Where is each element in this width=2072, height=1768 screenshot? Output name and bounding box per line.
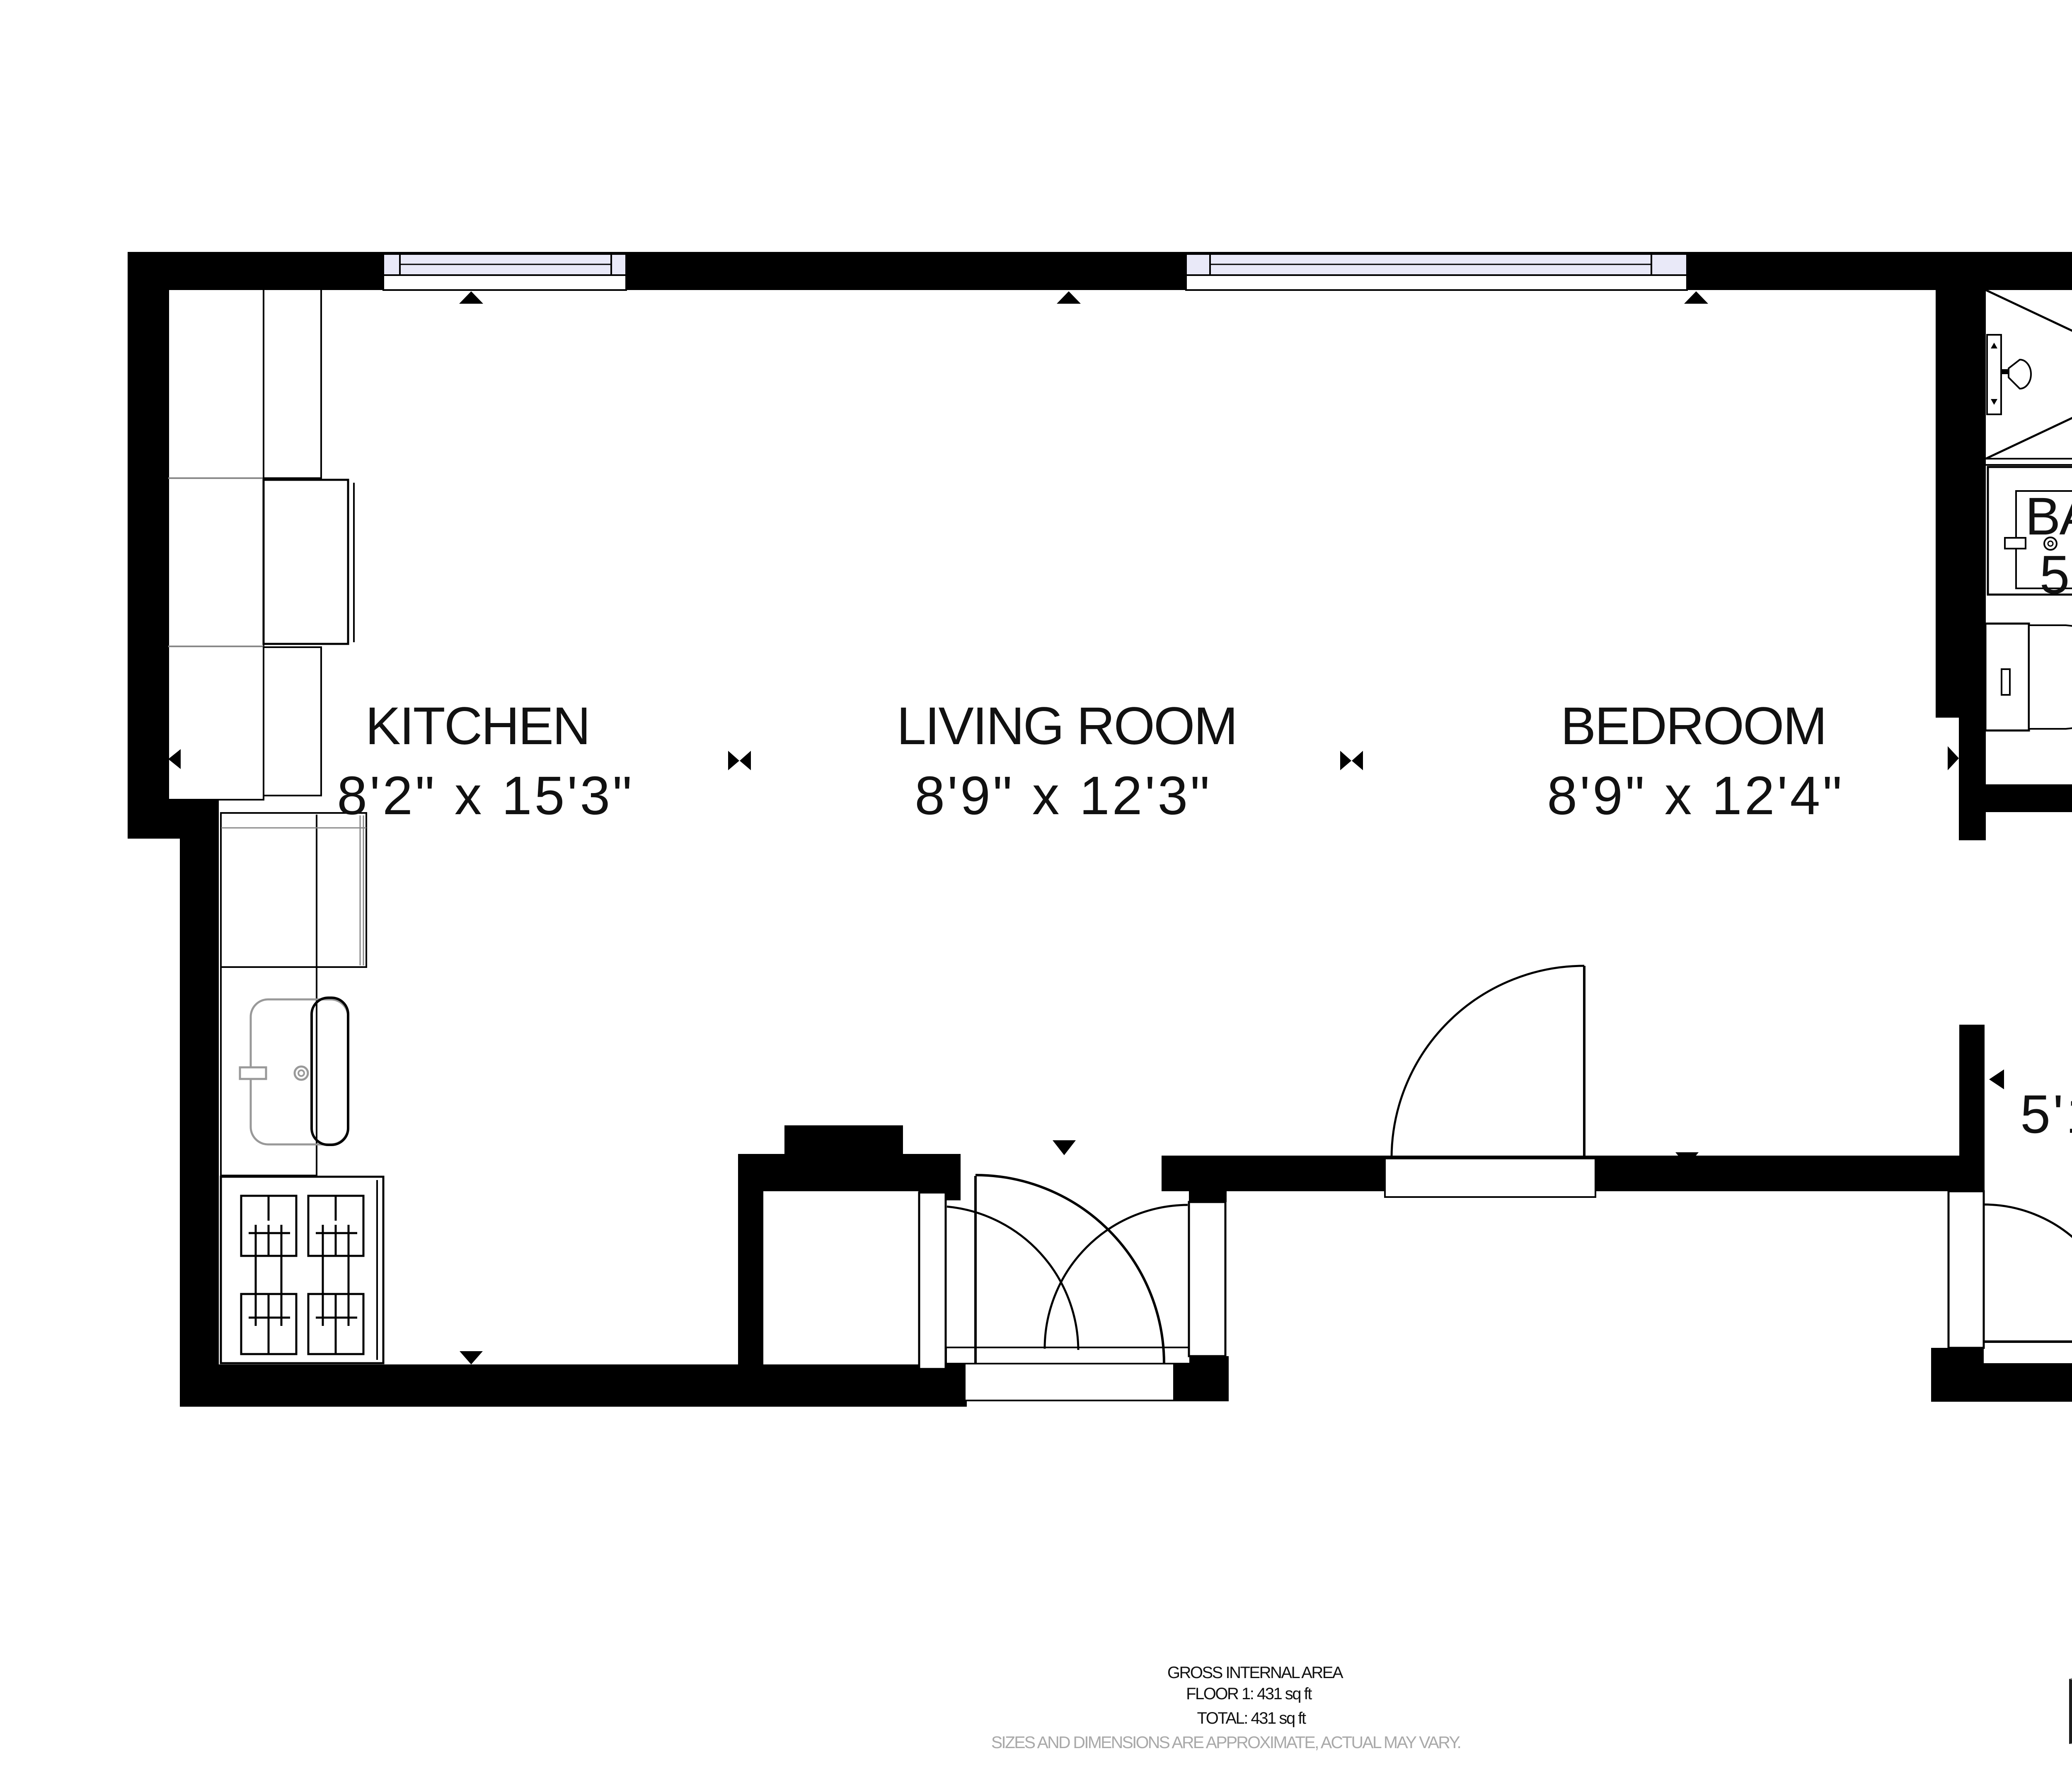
svg-text:5'1" x 7'10": 5'1" x 7'10" (2020, 1084, 2072, 1144)
svg-text:FLOOR 1: 431 sq ft: FLOOR 1: 431 sq ft (1186, 1685, 1312, 1703)
svg-text:GROSS INTERNAL AREA: GROSS INTERNAL AREA (1167, 1664, 1343, 1682)
svg-text:8'2" x 15'3": 8'2" x 15'3" (337, 765, 634, 826)
svg-text:BEDROOM: BEDROOM (1561, 697, 1826, 756)
svg-text:LIVING ROOM: LIVING ROOM (897, 697, 1237, 756)
svg-text:5'1" x 7'1": 5'1" x 7'1" (2040, 544, 2072, 605)
svg-text:8'9" x 12'3": 8'9" x 12'3" (915, 765, 1212, 826)
svg-text:8'9" x 12'4": 8'9" x 12'4" (1547, 765, 1844, 826)
svg-text:KITCHEN: KITCHEN (366, 697, 590, 756)
svg-text:TOTAL: 431 sq ft: TOTAL: 431 sq ft (1197, 1709, 1306, 1727)
svg-text:SIZES AND DIMENSIONS ARE APPRO: SIZES AND DIMENSIONS ARE APPROXIMATE, AC… (991, 1733, 1460, 1752)
svg-text:BATHROOM: BATHROOM (2025, 487, 2072, 546)
